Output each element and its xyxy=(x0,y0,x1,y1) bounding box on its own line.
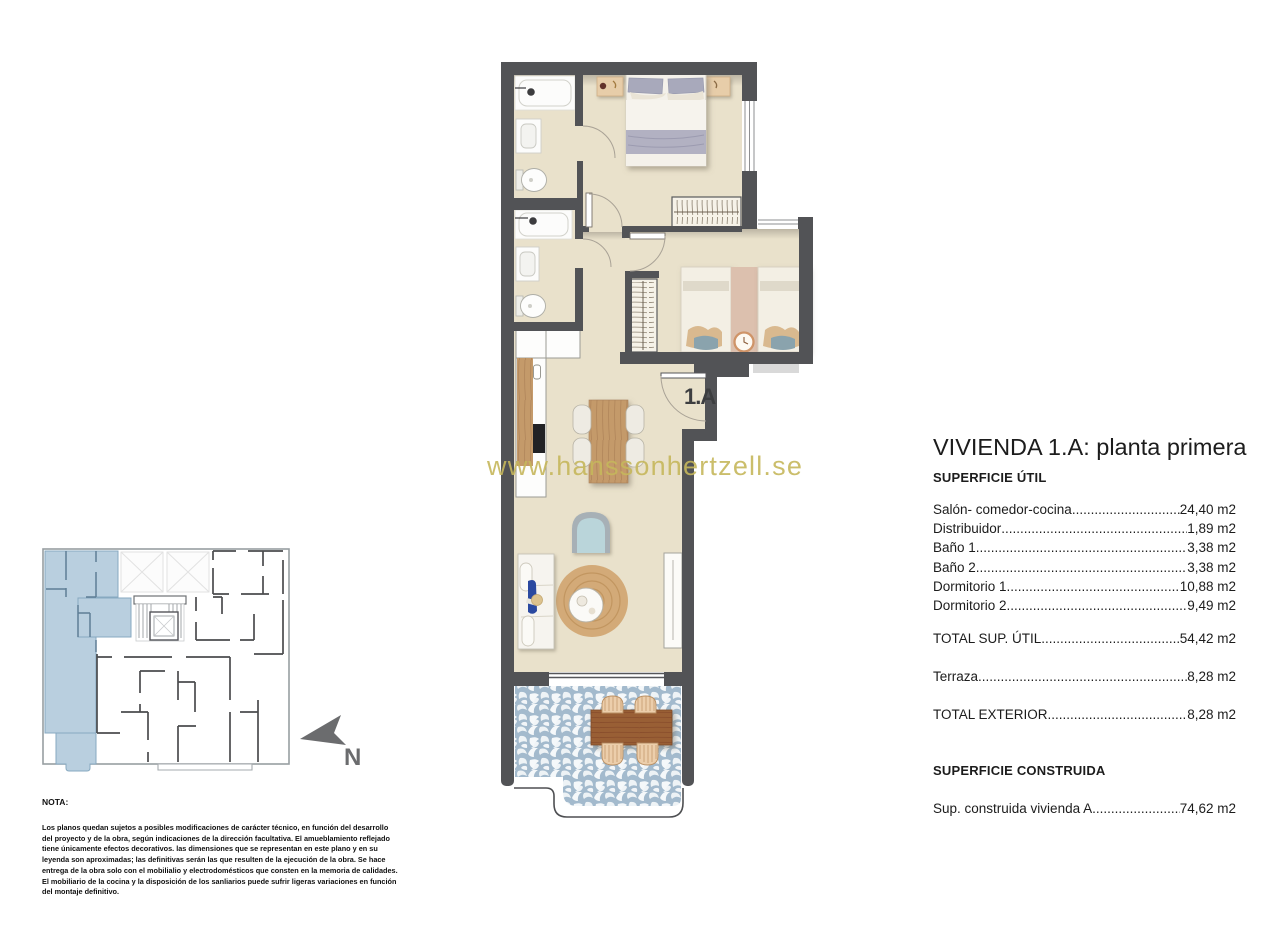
svg-text:www.hanssonhertzell.se: www.hanssonhertzell.se xyxy=(486,451,803,481)
svg-text:1.A: 1.A xyxy=(684,384,716,409)
svg-text:N: N xyxy=(344,744,361,771)
